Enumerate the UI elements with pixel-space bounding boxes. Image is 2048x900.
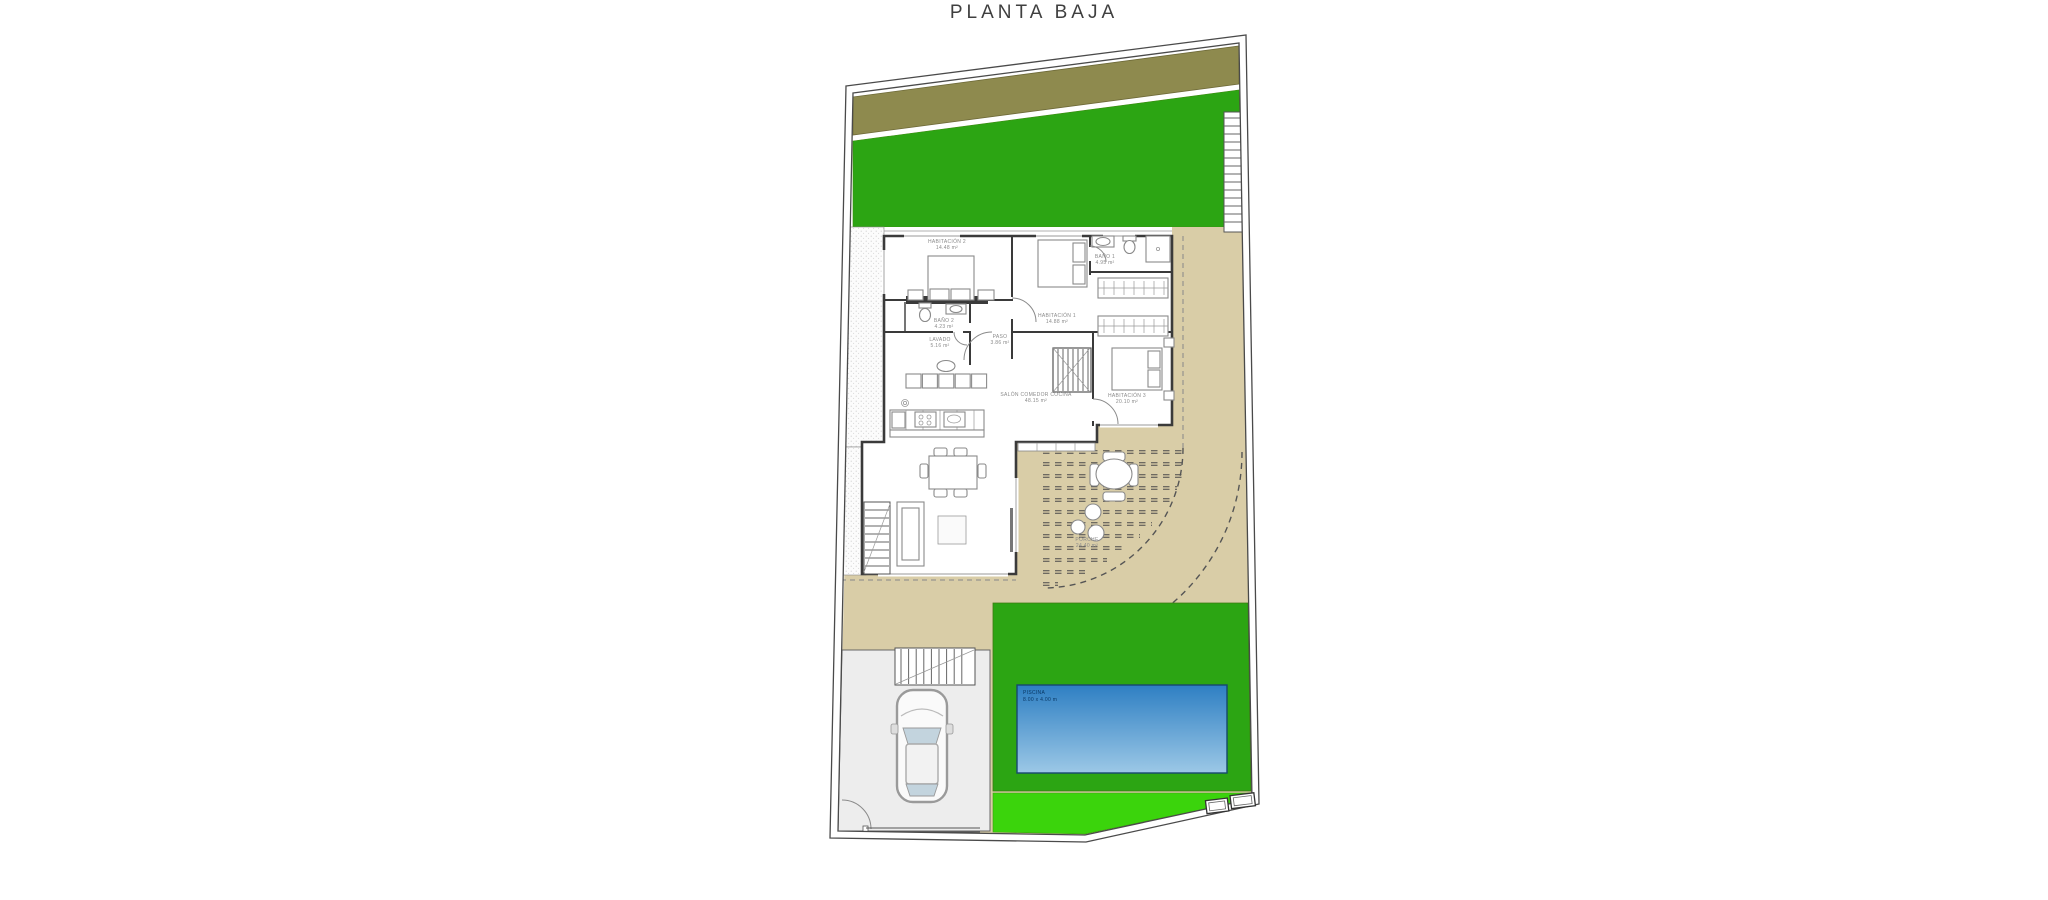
exterior-stairs: [1224, 112, 1246, 232]
car: [891, 690, 953, 802]
svg-text:24.40 m²: 24.40 m²: [1076, 543, 1098, 549]
tv-unit: [1010, 508, 1013, 552]
room-label-bano1: BAÑO 1 4.95 m²: [1095, 253, 1115, 266]
floor-plan-page: PISCINA 8.00 x 4.00 m: [0, 0, 2048, 900]
svg-text:BAÑO 1: BAÑO 1: [1095, 253, 1115, 260]
svg-text:4.95 m²: 4.95 m²: [1095, 260, 1114, 266]
page-title: PLANTA BAJA: [950, 2, 1118, 23]
svg-text:3.86 m²: 3.86 m²: [990, 340, 1009, 346]
svg-text:8.00 x 4.00 m: 8.00 x 4.00 m: [1023, 697, 1057, 703]
svg-text:48.15 m²: 48.15 m²: [1025, 398, 1047, 404]
coffee-table: [938, 516, 966, 544]
svg-text:HABITACIÓN 2: HABITACIÓN 2: [928, 238, 966, 245]
room-label-porche: PORCHE 24.40 m²: [1075, 537, 1099, 549]
interior-stairs-hall: [1053, 348, 1091, 392]
svg-text:20.10 m²: 20.10 m²: [1116, 399, 1138, 405]
swimming-pool: PISCINA 8.00 x 4.00 m: [1017, 685, 1227, 773]
driveway: [838, 648, 990, 834]
sofa: [897, 502, 924, 566]
driveway-stairs: [895, 648, 975, 685]
porch-step: [1018, 443, 1095, 451]
svg-text:14.88 m²: 14.88 m²: [1046, 319, 1068, 325]
svg-text:SALÓN COMEDOR COCINA: SALÓN COMEDOR COCINA: [1000, 391, 1072, 398]
room-label-bano2: BAÑO 2 4.23 m²: [934, 317, 954, 330]
svg-text:PISCINA: PISCINA: [1023, 690, 1045, 696]
svg-text:4.23 m²: 4.23 m²: [934, 324, 953, 330]
svg-text:HABITACIÓN 1: HABITACIÓN 1: [1038, 312, 1076, 319]
svg-text:BAÑO 2: BAÑO 2: [934, 317, 954, 324]
svg-text:5.16 m²: 5.16 m²: [930, 343, 949, 349]
bed-habitacion1: [1038, 240, 1087, 287]
room-label-paso: PASO 3.86 m²: [990, 334, 1009, 346]
svg-text:HABITACIÓN 3: HABITACIÓN 3: [1108, 392, 1146, 399]
interior-stairs-sw: [864, 502, 890, 574]
room-label-lavado: LAVADO 5.16 m²: [929, 337, 950, 349]
floor-plan-drawing: PISCINA 8.00 x 4.00 m: [0, 0, 2048, 900]
svg-text:14.48 m²: 14.48 m²: [936, 245, 958, 251]
